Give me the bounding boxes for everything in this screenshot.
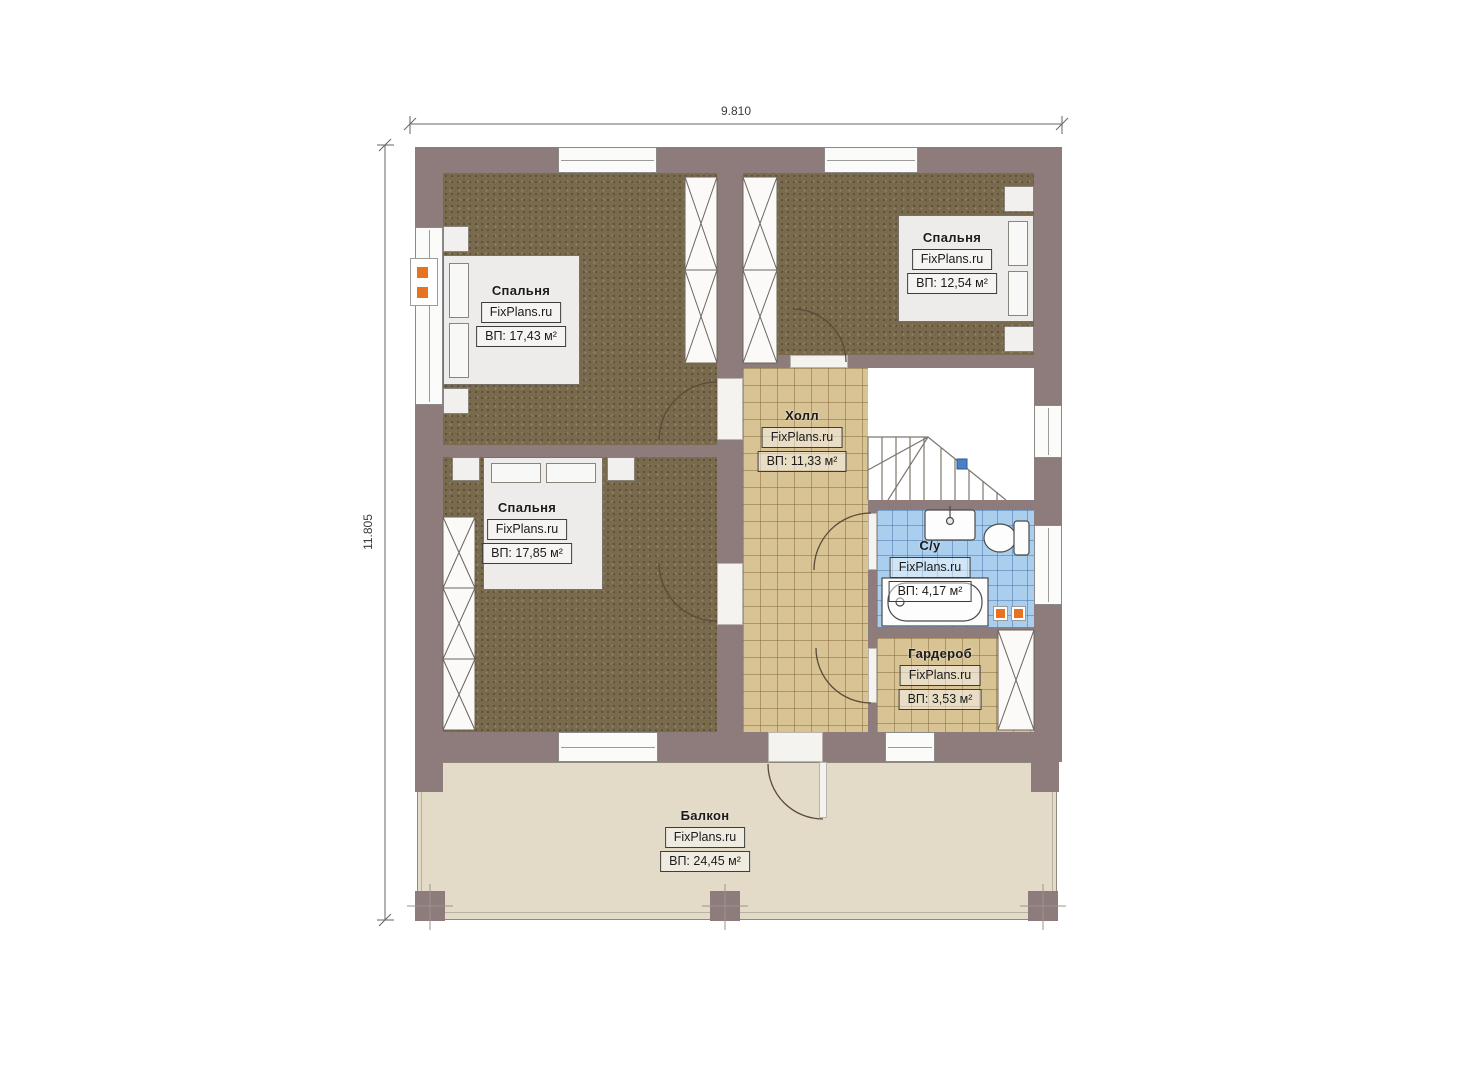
room-name: Гардероб	[908, 646, 972, 661]
balcony-door-leaf	[819, 762, 827, 818]
area-box: ВП: 12,54 м²	[907, 273, 997, 294]
wall-stairwell-bottom	[868, 500, 1034, 510]
socket-icon	[416, 266, 429, 279]
room-name: Балкон	[681, 808, 730, 823]
room-label-balcony: Балкон FixPlans.ru ВП: 24,45 м²	[660, 808, 750, 872]
window-bottom-wardrobe	[885, 732, 935, 762]
socket-icon	[416, 286, 429, 299]
area-box: ВП: 11,33 м²	[758, 451, 847, 472]
wall-outer-bottom	[415, 732, 1062, 762]
brand-box: FixPlans.ru	[487, 519, 568, 540]
area-box: ВП: 17,43 м²	[476, 326, 566, 347]
nightstand	[1004, 186, 1034, 212]
room-name: Спальня	[492, 283, 550, 298]
wall-between-bedrooms-left	[443, 445, 717, 457]
room-label-bathroom: С/у FixPlans.ru ВП: 4,17 м²	[889, 538, 972, 602]
room-label-hall: Холл FixPlans.ru ВП: 11,33 м²	[758, 408, 847, 472]
area-box: ВП: 4,17 м²	[889, 581, 972, 602]
door-opening-balcony	[768, 732, 823, 762]
room-name: С/у	[919, 538, 940, 553]
area-box: ВП: 3,53 м²	[899, 689, 982, 710]
window-right-bathroom	[1034, 525, 1062, 605]
pillow	[1008, 271, 1028, 316]
brand-box: FixPlans.ru	[481, 302, 562, 323]
brand-box: FixPlans.ru	[762, 427, 843, 448]
balcony-post-center	[710, 891, 740, 921]
wall-below-bedroom-top-right	[743, 355, 1034, 368]
brand-box: FixPlans.ru	[900, 665, 981, 686]
window-right-stairwell	[1034, 405, 1062, 458]
area-box: ВП: 17,85 м²	[482, 543, 572, 564]
socket-icon	[995, 608, 1006, 619]
door-opening-bedroom-top-right	[790, 355, 848, 368]
balcony-wall-stub-right	[1031, 762, 1059, 792]
wall-partition-vertical-center	[717, 173, 743, 732]
window-bottom-bedroom	[558, 732, 658, 762]
door-opening-wardrobe	[868, 648, 877, 703]
nightstand	[443, 226, 469, 252]
nightstand	[1004, 326, 1034, 352]
room-name: Холл	[785, 408, 819, 423]
floor-plan: Спальня FixPlans.ru ВП: 17,43 м² Спальня…	[0, 0, 1474, 1080]
pillow	[449, 323, 469, 378]
nightstand	[443, 388, 469, 414]
wall-bathroom-wardrobe	[868, 627, 1034, 638]
room-name: Спальня	[923, 230, 981, 245]
room-name: Спальня	[498, 500, 556, 515]
dimension-left	[377, 139, 394, 926]
pillow	[1008, 221, 1028, 266]
wall-outer-top	[415, 147, 1062, 173]
room-label-bedroom-top-left: Спальня FixPlans.ru ВП: 17,43 м²	[476, 283, 566, 347]
door-opening-bedroom-bottom-left	[717, 563, 743, 625]
room-label-bedroom-top-right: Спальня FixPlans.ru ВП: 12,54 м²	[907, 230, 997, 294]
brand-box: FixPlans.ru	[890, 557, 971, 578]
door-opening-bathroom	[868, 513, 877, 570]
pillow	[449, 263, 469, 318]
window-left-bedroom	[415, 227, 443, 405]
brand-box: FixPlans.ru	[665, 827, 746, 848]
balcony-post-right	[1028, 891, 1058, 921]
dimension-height-label: 11.805	[361, 514, 375, 550]
window-top-bedroom-right	[824, 147, 918, 173]
socket-icon	[1013, 608, 1024, 619]
room-label-wardrobe: Гардероб FixPlans.ru ВП: 3,53 м²	[899, 646, 982, 710]
dimension-width-label: 9.810	[721, 104, 751, 118]
room-label-bedroom-bottom-left: Спальня FixPlans.ru ВП: 17,85 м²	[482, 500, 572, 564]
brand-box: FixPlans.ru	[912, 249, 993, 270]
floor-stairwell	[868, 368, 1034, 500]
balcony-wall-stub-left	[415, 762, 443, 792]
pillow	[491, 463, 541, 483]
area-box: ВП: 24,45 м²	[660, 851, 750, 872]
nightstand	[607, 457, 635, 481]
door-opening-bedroom-top-left	[717, 378, 743, 440]
dimension-top	[404, 116, 1068, 134]
nightstand	[452, 457, 480, 481]
pillow	[546, 463, 596, 483]
window-top-bedroom-left	[558, 147, 657, 173]
balcony-post-left	[415, 891, 445, 921]
